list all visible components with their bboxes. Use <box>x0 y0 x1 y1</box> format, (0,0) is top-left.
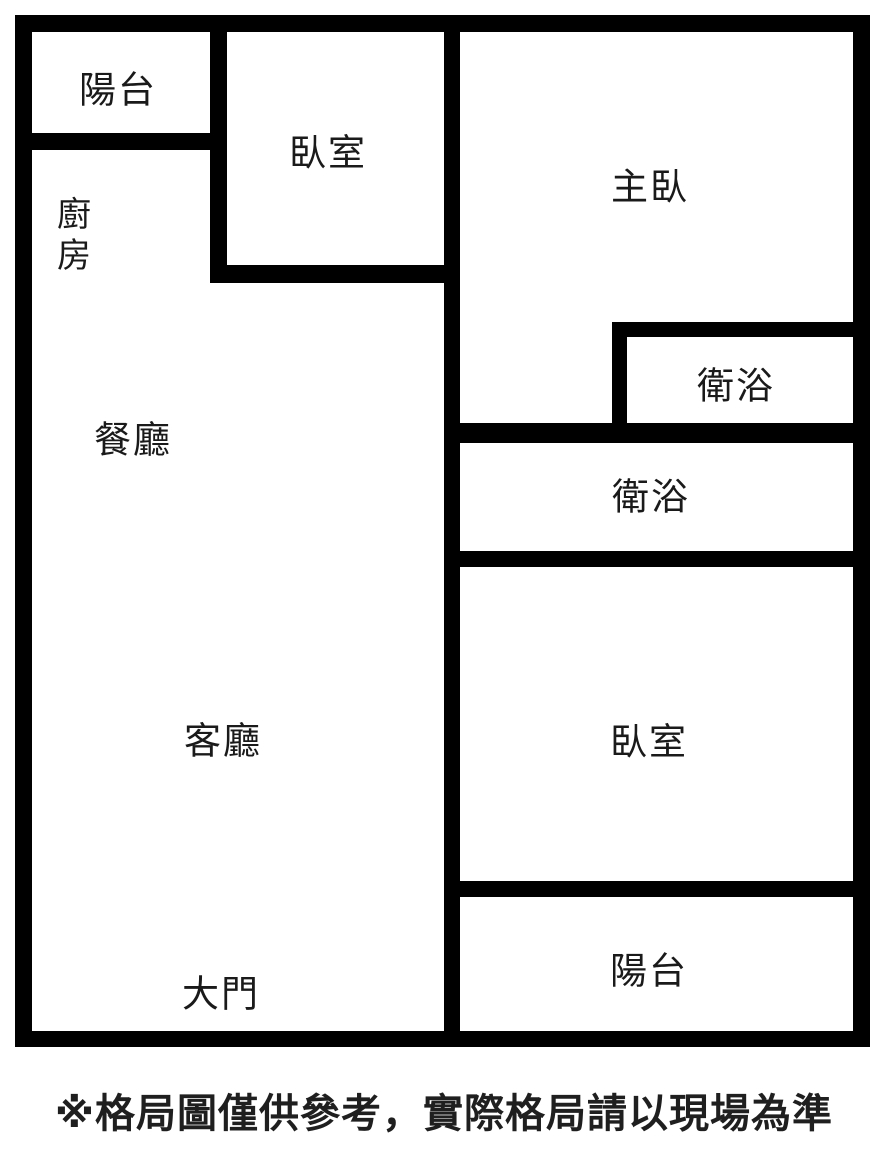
wall-bath-lower-bottom <box>444 551 870 567</box>
room-label-bathroom-upper: 衛浴 <box>697 368 775 405</box>
footer-disclaimer: ※格局圖僅供參考，實際格局請以現場為準 <box>55 1081 833 1139</box>
wall-bedroom-top-bottom <box>210 265 460 283</box>
wall-bath-lower-top <box>444 423 870 443</box>
room-label-master-bedroom: 主臥 <box>611 169 689 206</box>
room-label-bathroom-lower: 衛浴 <box>612 479 690 516</box>
room-label-dining-room: 餐廳 <box>94 422 172 459</box>
wall-bath-upper-top <box>612 322 853 337</box>
wall-bedroom-top-left <box>210 15 227 283</box>
room-label-balcony-top: 陽台 <box>79 72 157 109</box>
wall-balcony-top-bottom <box>32 133 210 150</box>
wall-bedroom-right-bottom <box>444 881 870 897</box>
wall-outer-bottom <box>15 1031 870 1047</box>
room-label-kitchen-char2: 房 <box>57 239 91 273</box>
room-label-balcony-bottom: 陽台 <box>610 953 688 990</box>
room-label-kitchen-char1: 廚 <box>57 198 91 232</box>
wall-outer-top <box>15 15 870 32</box>
wall-outer-left <box>15 15 32 1047</box>
room-label-bedroom-right: 臥室 <box>610 724 688 761</box>
floorplan-canvas: 陽台 臥室 主臥 廚 房 衛浴 餐廳 衛浴 客廳 臥室 陽台 大門 ※格局圖僅供… <box>0 0 888 1150</box>
room-label-main-door: 大門 <box>182 976 260 1013</box>
room-label-living-room: 客廳 <box>184 723 262 760</box>
room-label-bedroom-top: 臥室 <box>289 135 367 172</box>
